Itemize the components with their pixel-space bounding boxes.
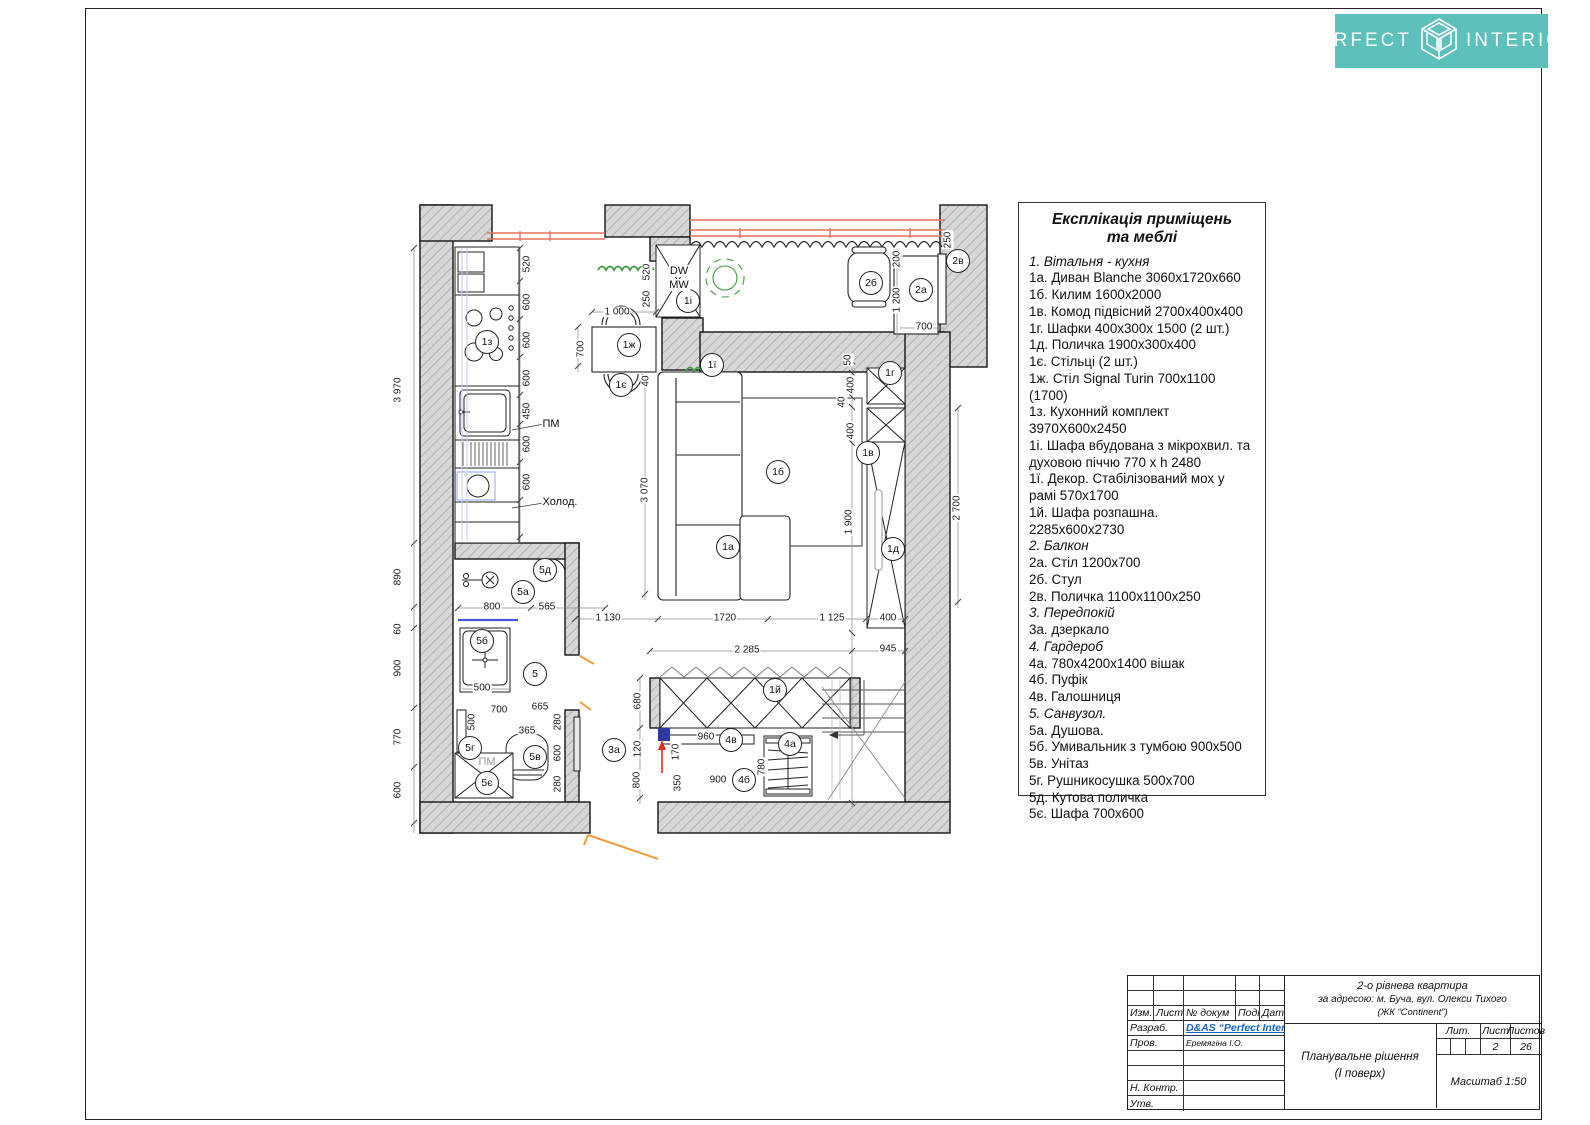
legend-item: 1ж. Стіл Signal Turin 700х1100 (1700) — [1029, 371, 1255, 405]
legend-item: 1б. Килим 1600х2000 — [1029, 287, 1255, 304]
legend-section: 2. Балкон — [1029, 538, 1255, 555]
approve-label: Утв. — [1128, 1096, 1184, 1111]
ncontrol-label: Н. Контр. — [1128, 1081, 1184, 1095]
legend-item: 4а. 780х4200х1400 вішак — [1029, 656, 1255, 673]
developer-value: D&AS “Perfect Interior” — [1184, 1021, 1284, 1035]
balcony-chair — [848, 252, 890, 304]
kitchen-unit — [455, 247, 519, 543]
legend-item: 1г. Шафки 400х300х 1500 (2 шт.) — [1029, 321, 1255, 338]
entry-arrow — [658, 740, 666, 773]
legend-item: 2б. Стул — [1029, 572, 1255, 589]
legend-item: 5б. Умивальник з тумбою 900х500 — [1029, 739, 1255, 756]
legend-item: 4б. Пуфік — [1029, 672, 1255, 689]
logo-text-left: PERFECT — [1302, 30, 1412, 52]
checker-label: Пров. — [1128, 1036, 1184, 1050]
legend-item: 4в. Галошниця — [1029, 689, 1255, 706]
legend-section: 1. Вітальня - кухня — [1029, 254, 1255, 271]
mirror — [574, 717, 580, 771]
entry-marker — [658, 728, 670, 741]
corner-shelf — [551, 559, 565, 573]
balcony-table — [894, 256, 938, 334]
balcony-shelf — [938, 254, 946, 324]
project-address: 2-о рівнева квартира за адресою: м. Буча… — [1284, 976, 1541, 1024]
legend-item: 5є. Шафа 700х600 — [1029, 806, 1255, 823]
balcony-railing — [690, 242, 942, 248]
wardrobe-unit — [658, 667, 850, 796]
legend-item: 5г. Рушникосушка 500х700 — [1029, 773, 1255, 790]
legend-item: 1з. Кухонний комплект 3970Х600х2450 — [1029, 404, 1255, 438]
drawing-sheet: { "logo": {"left": "PERFECT", "right": "… — [0, 0, 1590, 1125]
towel-dryer — [457, 710, 466, 752]
title-block: Изм. Лист № докум Подп. Дата Разраб. D&A… — [1127, 975, 1540, 1110]
legend-item: 1д. Поличка 1900х300х400 — [1029, 337, 1255, 354]
legend-item: 5а. Душова. — [1029, 723, 1255, 740]
bathroom-fixtures — [455, 559, 580, 798]
sheet-info: Лит. Лист Листов 2 26 Масштаб 1:50 — [1436, 1023, 1541, 1108]
plant — [706, 259, 744, 297]
legend-list: 1. Вітальня - кухня1а. Диван Blanche 306… — [1029, 254, 1255, 824]
balcony-furniture — [706, 247, 946, 334]
legend-item: 1а. Диван Blanche 3060х1720х660 — [1029, 270, 1255, 287]
developer-label: Разраб. — [1128, 1021, 1184, 1035]
document-title: Планувальне рішення (І поверх) — [1284, 1023, 1437, 1108]
appliance-shaft — [656, 245, 700, 317]
legend-section: 4. Гардероб — [1029, 639, 1255, 656]
legend-item: 1є. Стільці (2 шт.) — [1029, 354, 1255, 371]
legend-section: 3. Передпокій — [1029, 605, 1255, 622]
legend-item: 1в. Комод підвісний 2700х400х400 — [1029, 304, 1255, 321]
sofa — [658, 372, 790, 600]
title-block-signatures: Изм. Лист № докум Подп. Дата Разраб. D&A… — [1128, 976, 1285, 1109]
door-swings — [580, 656, 658, 859]
shoe-rack — [662, 735, 754, 744]
legend-item: 3а. дзеркало — [1029, 622, 1255, 639]
legend-section: 5. Санвузол. — [1029, 706, 1255, 723]
legend-item: 2а. Стіл 1200х700 — [1029, 555, 1255, 572]
legend-item: 2в. Поличка 1100х1100х250 — [1029, 589, 1255, 606]
legend-item: 1ї. Декор. Стабілізований мох у рамі 570… — [1029, 471, 1255, 505]
company-logo: PERFECT INTERIOR — [1335, 14, 1548, 68]
legend-item: 1й. Шафа розпашна. 2285х600х2730 — [1029, 505, 1255, 539]
chair-top — [602, 306, 640, 325]
window-glazing-lines — [487, 220, 945, 241]
legend-item: 5в. Унітаз — [1029, 756, 1255, 773]
legend-item: 5д. Кутова поличка — [1029, 790, 1255, 807]
checker-value: Еремягіна І.О. — [1184, 1036, 1284, 1050]
wall-unit — [867, 368, 905, 628]
hanger — [764, 736, 812, 796]
cube-logo-icon — [1419, 17, 1459, 66]
legend-item: 1і. Шафа вбудована з мікрохвил. та духов… — [1029, 438, 1255, 472]
logo-text-right: INTERIOR — [1466, 30, 1581, 52]
chair-bottom — [604, 374, 642, 393]
dining-table — [592, 306, 656, 393]
title-block-header-row: Изм. Лист № докум Подп. Дата — [1128, 1006, 1284, 1021]
sheet-number: 2 — [1481, 1039, 1511, 1054]
legend-panel: Експлікація приміщень та меблі 1. Віталь… — [1018, 202, 1266, 796]
scale-label: Масштаб 1:50 — [1436, 1055, 1541, 1108]
legend-title: Експлікація приміщень та меблі — [1029, 211, 1255, 247]
floor-plan — [400, 190, 1000, 860]
sheets-total: 26 — [1511, 1039, 1541, 1054]
floor-plan-drawing — [400, 190, 1000, 860]
